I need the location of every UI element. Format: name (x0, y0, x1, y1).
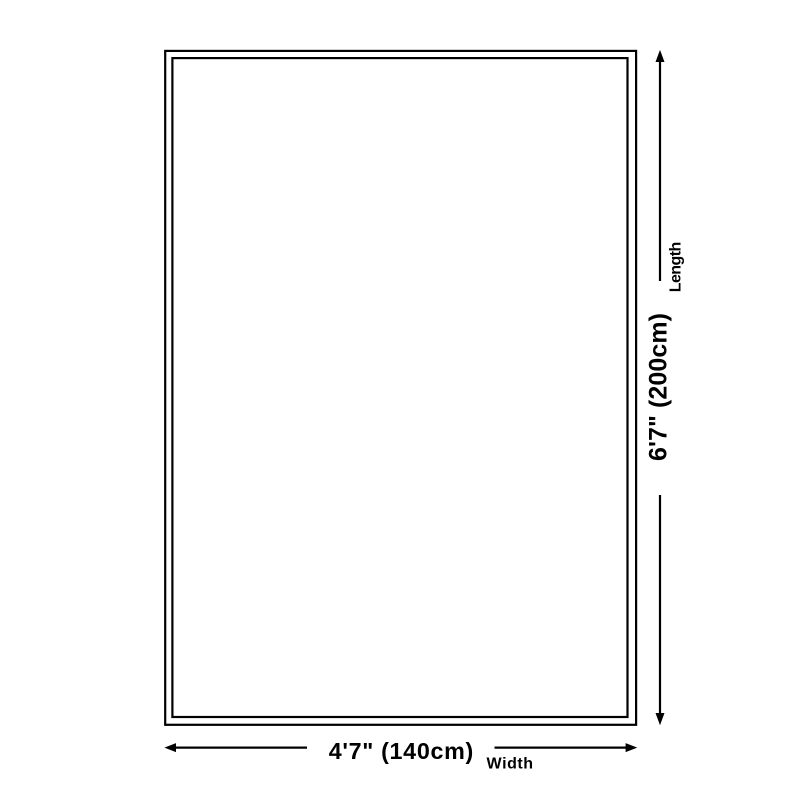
svg-text:4'7" (140cm): 4'7" (140cm) (329, 738, 474, 764)
svg-text:Length: Length (668, 242, 685, 293)
svg-text:6'7" (200cm): 6'7" (200cm) (645, 313, 673, 461)
svg-text:Width: Width (487, 756, 534, 773)
